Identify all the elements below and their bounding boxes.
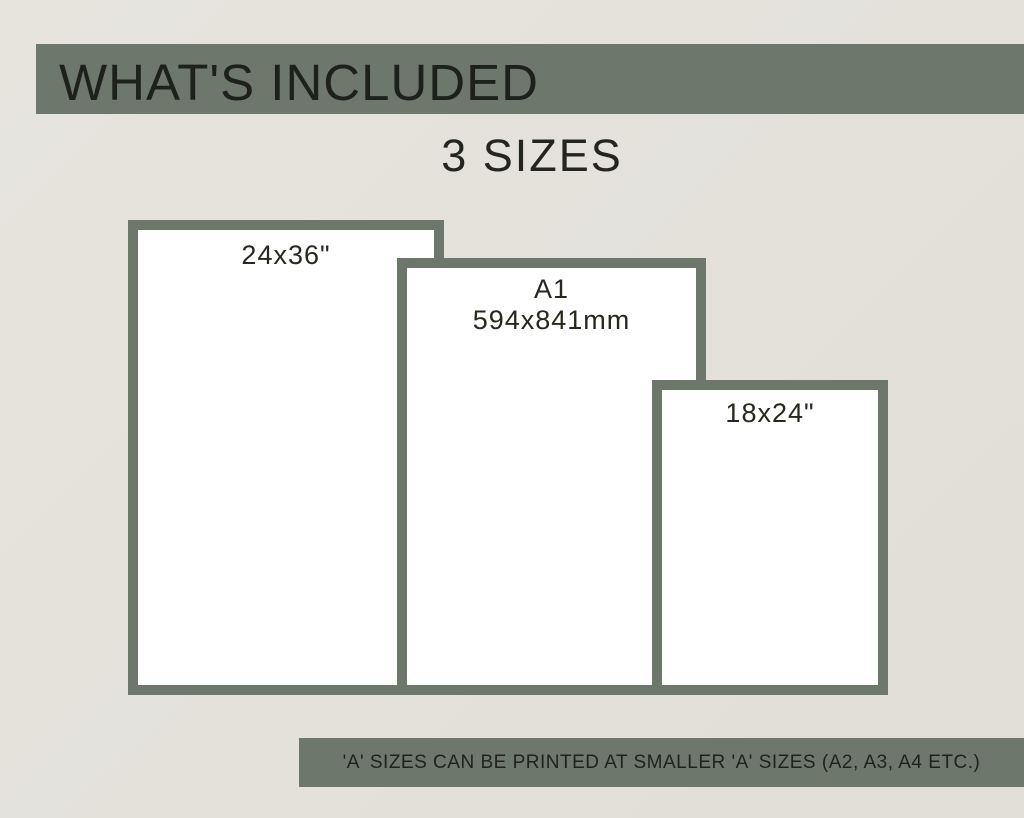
footnote-text: 'A' SIZES CAN BE PRINTED AT SMALLER 'A' …: [343, 752, 981, 774]
header-band: WHAT'S INCLUDED: [36, 44, 1024, 114]
sizes-count-subtitle: 3 SIZES: [441, 130, 623, 182]
footnote-band: 'A' SIZES CAN BE PRINTED AT SMALLER 'A' …: [299, 738, 1024, 787]
page-title: WHAT'S INCLUDED: [36, 47, 539, 112]
size-label-a1: A1 594x841mm: [407, 268, 696, 336]
size-label-line: 24x36": [138, 240, 434, 271]
size-label-line: 594x841mm: [407, 305, 696, 336]
size-label-line: 18x24": [662, 398, 878, 429]
size-rectangle-18x24: 18x24": [652, 380, 888, 695]
size-label-line: A1: [407, 274, 696, 305]
size-label-24x36: 24x36": [138, 230, 434, 271]
infographic-canvas: WHAT'S INCLUDED 3 SIZES 24x36" A1 594x84…: [0, 0, 1024, 818]
size-label-18x24: 18x24": [662, 390, 878, 429]
